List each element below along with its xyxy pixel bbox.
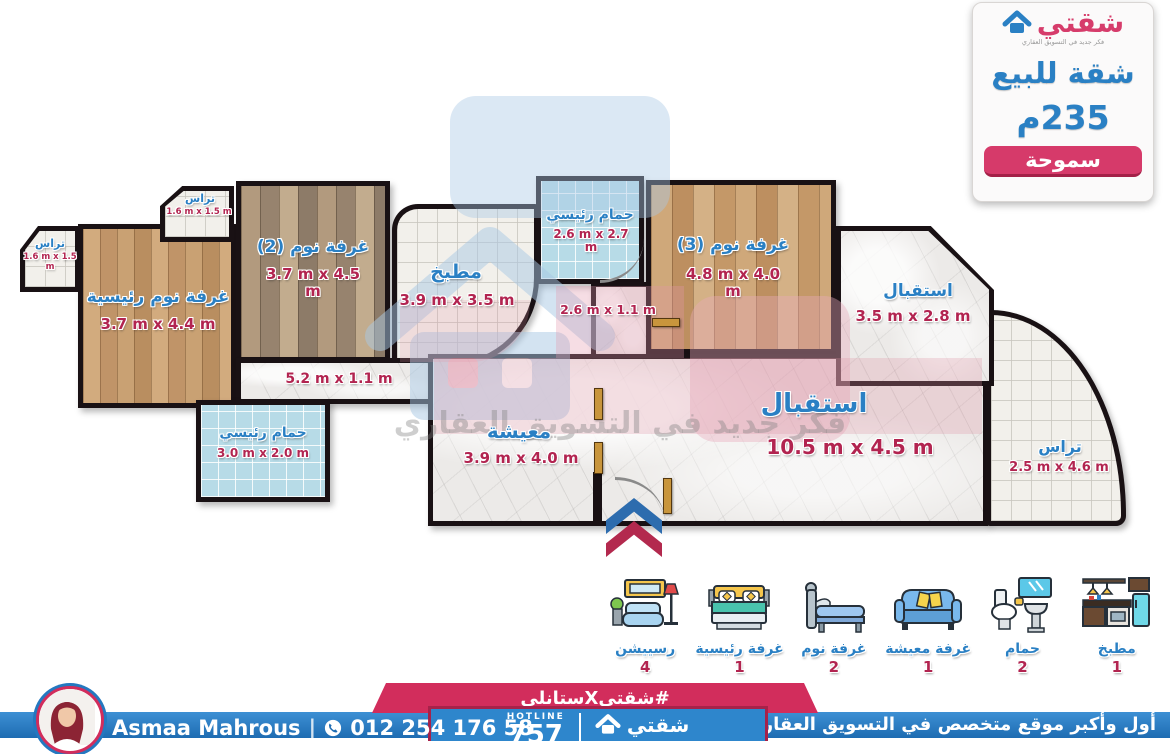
room-dim-label: 3.9 m x 3.5 m: [398, 292, 516, 309]
brand-logo: شقتي: [1002, 9, 1124, 37]
listing-title: شقة للبيع: [991, 56, 1134, 90]
room-name-label: تراس: [22, 238, 78, 250]
brand-tagline: فكر جديد في التسويق العقاري: [1022, 38, 1104, 46]
hall-divider-wall: [593, 472, 602, 524]
room-dim-label: 2.5 m x 4.6 m: [1000, 461, 1118, 476]
room-name-label: استقبال: [870, 282, 966, 301]
reception-upper-floor: [841, 231, 989, 381]
room-name-label: غرفة نوم (2): [250, 238, 376, 257]
legend-label: مطبخ: [1098, 641, 1136, 657]
room-corridor-small: [591, 282, 653, 360]
legend-count: 1: [923, 658, 933, 676]
room-dim-label: 3.5 m x 2.8 m: [852, 308, 974, 325]
legend-count: 2: [1017, 658, 1027, 676]
room-dim-label: 3.9 m x 4.0 m: [456, 450, 586, 467]
room-name-label: غرفة نوم رئيسية: [86, 288, 230, 307]
poster: { "info_card": { "logo_text": "شقتي", "t…: [0, 0, 1170, 738]
room-dim-label: 3.0 m x 2.0 m: [214, 447, 312, 460]
door-entrance: [663, 478, 672, 514]
brand-house-icon: [1002, 10, 1032, 36]
room-name-label: معيشة: [458, 420, 580, 442]
room-dim-label: 5.2 m x 1.1 m: [244, 372, 434, 388]
room-kitchen: [392, 204, 539, 368]
room-dim-label: 10.5 m x 4.5 m: [728, 436, 972, 458]
room-name-label: حمام رئيسي: [542, 208, 638, 224]
living-room-icon: [892, 568, 964, 638]
listing-info-card: شقتي فكر جديد في التسويق العقاري شقة للب…: [972, 2, 1154, 202]
legend-count: 2: [829, 658, 839, 676]
room-reception-upper: [836, 226, 994, 386]
room-dim-label: 4.8 m x 4.0 m: [676, 266, 790, 300]
listing-area: 235م: [1016, 98, 1109, 137]
legend-label: حمام: [1005, 641, 1040, 657]
legend: رسييشن 4 غرفة رئيسية 1: [598, 556, 1164, 676]
agent-separator: |: [309, 716, 317, 740]
legend-label: غرفة رئيسية: [695, 641, 783, 657]
agent-avatar: [36, 686, 104, 754]
phone-icon: [324, 719, 342, 737]
legend-label: غرفة نوم: [801, 641, 866, 657]
legend-item-bedroom: غرفة نوم 2: [787, 556, 881, 676]
room-dim-label: 2.6 m x 1.1 m: [556, 303, 660, 317]
room-dim-label: 1.6 m x 1.5 m: [18, 253, 82, 272]
brand-house-icon: [595, 713, 621, 737]
door-bedroom3: [652, 318, 680, 327]
room-dim-label: 1.6 m x 1.5 m: [166, 208, 232, 218]
room-name-label: حمام رئيسي: [210, 426, 316, 442]
room-name-label: تراس: [172, 193, 228, 205]
room-name-label: مطبخ: [420, 262, 492, 283]
legend-count: 1: [734, 658, 744, 676]
door-hall-a: [594, 388, 603, 420]
room-dim-label: 3.7 m x 4.5 m: [256, 266, 370, 300]
kitchen-icon: [1081, 568, 1153, 638]
room-dim-label: 3.7 m x 4.4 m: [92, 316, 224, 333]
hotline-divider: [579, 713, 581, 741]
footer-brand: شقتي: [595, 713, 689, 737]
master-bedroom-icon: [705, 568, 773, 638]
legend-item-living-room: غرفة معيشة 1: [881, 556, 975, 676]
room-name-label: استقبال: [732, 390, 896, 419]
legend-item-reception: رسييشن 4: [598, 556, 692, 676]
legend-label: غرفة معيشة: [885, 641, 971, 657]
footer-brand-text: شقتي: [627, 713, 689, 737]
legend-item-bathroom: حمام 2: [975, 556, 1069, 676]
agent-name: Asmaa Mahrous: [112, 716, 301, 740]
legend-item-kitchen: مطبخ 1: [1070, 556, 1164, 676]
legend-label: رسييشن: [615, 641, 675, 657]
bedroom-icon: [799, 568, 869, 638]
room-name-label: غرفة نوم (3): [672, 236, 794, 255]
agent-phone: 012 254 176 58: [350, 716, 533, 740]
brand-logo-text: شقتي: [1037, 9, 1124, 37]
location-badge: سموحة: [984, 146, 1142, 177]
room-terrace-right: [986, 310, 1126, 526]
reception-icon: [609, 568, 681, 638]
bathroom-icon: [989, 568, 1055, 638]
legend-count: 1: [1112, 658, 1122, 676]
legend-item-master-bedroom: غرفة رئيسية 1: [692, 556, 786, 676]
door-hall-b: [594, 442, 603, 474]
room-name-label: تراس: [1018, 438, 1102, 456]
agent-info: Asmaa Mahrous | 012 254 176 58: [112, 716, 533, 740]
room-dim-label: 2.6 m x 2.7 m: [546, 228, 636, 255]
legend-count: 4: [640, 658, 650, 676]
